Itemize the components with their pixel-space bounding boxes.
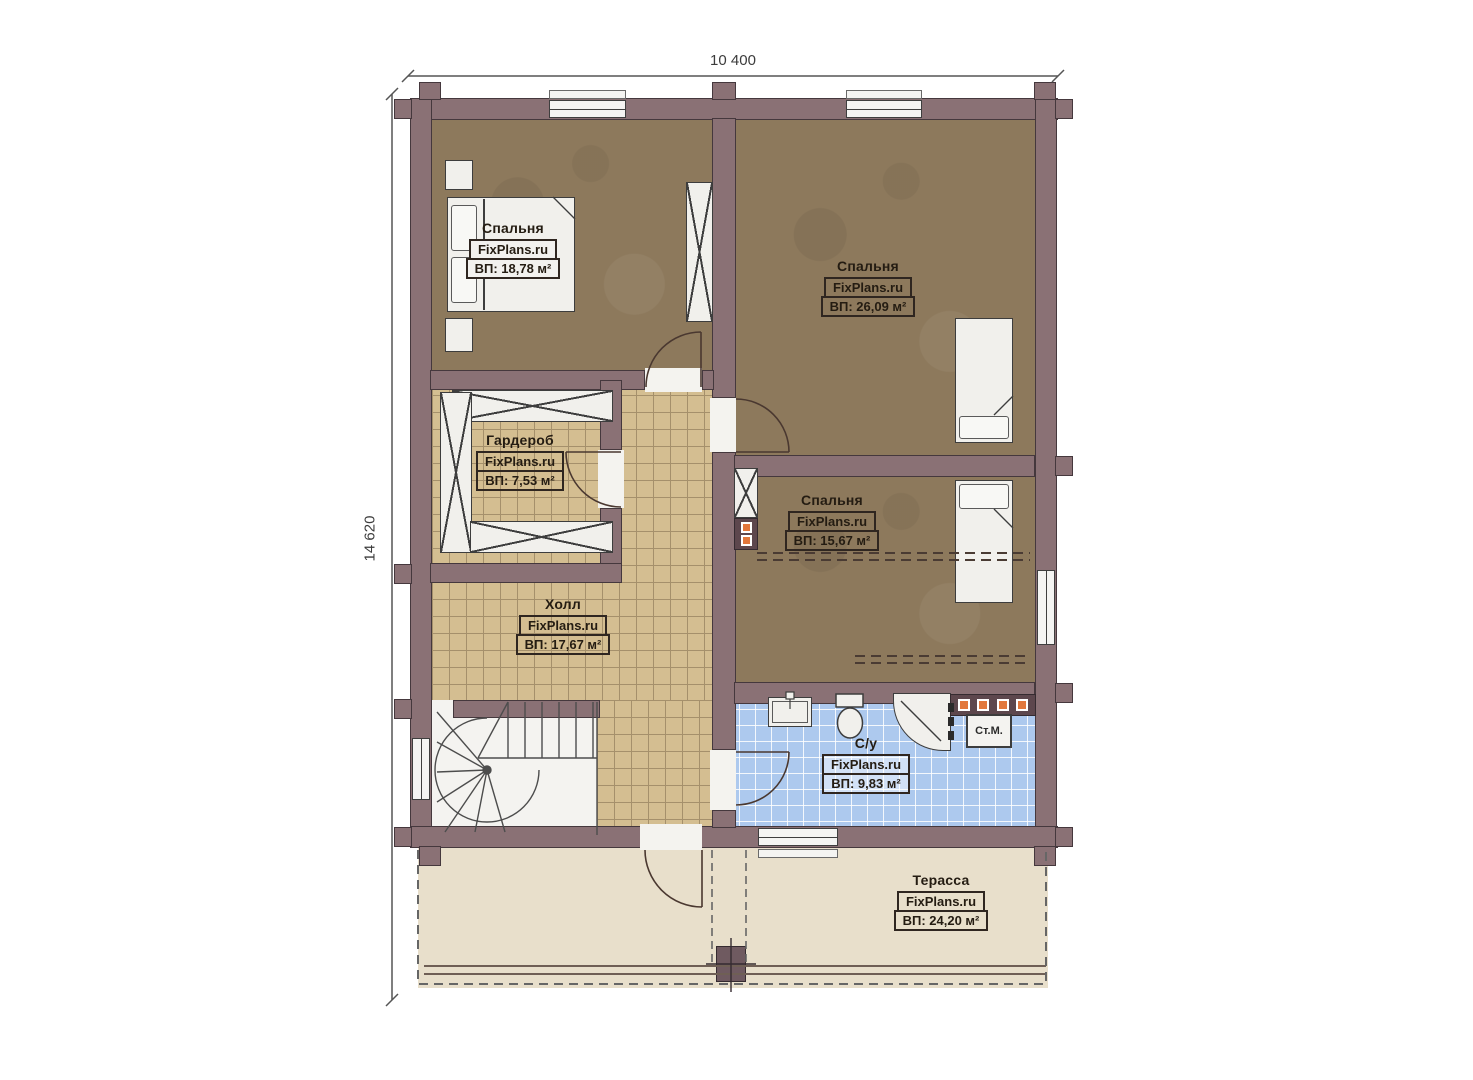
room-name: С/у (855, 735, 877, 751)
room-label-bedroom-3: Спальня FixPlans.ru ВП: 15,67 м² (772, 492, 892, 551)
room-name: Спальня (837, 258, 899, 274)
ceiling-height-dashed-line (757, 553, 1030, 663)
room-name: Гардероб (486, 432, 554, 448)
room-area: ВП: 9,83 м² (822, 773, 910, 794)
bed-folds (553, 197, 1013, 528)
plan-linework (0, 0, 1473, 1080)
room-label-wardrobe: Гардероб FixPlans.ru ВП: 7,53 м² (460, 432, 580, 491)
watermark: FixPlans.ru (897, 891, 985, 912)
floor-plan: Ст.М. (0, 0, 1473, 1080)
room-name: Терасса (913, 872, 970, 888)
room-label-terrace: Терасса FixPlans.ru ВП: 24,20 м² (881, 872, 1001, 931)
door-arc-bathroom (736, 752, 789, 805)
watermark: FixPlans.ru (469, 239, 557, 260)
room-name: Спальня (482, 220, 544, 236)
room-area: ВП: 24,20 м² (894, 910, 989, 931)
dimension-lines (386, 70, 1064, 1006)
room-area: ВП: 17,67 м² (516, 634, 611, 655)
room-area: ВП: 7,53 м² (476, 470, 564, 491)
room-name: Спальня (801, 492, 863, 508)
room-label-bathroom: С/у FixPlans.ru ВП: 9,83 м² (806, 735, 926, 794)
room-label-bedroom-2: Спальня FixPlans.ru ВП: 26,09 м² (808, 258, 928, 317)
dimension-height-label: 14 620 (362, 499, 379, 579)
room-area: ВП: 26,09 м² (821, 296, 916, 317)
dimension-width-label: 10 400 (693, 52, 773, 69)
sink-tap (786, 692, 794, 709)
room-label-hall: Холл FixPlans.ru ВП: 17,67 м² (503, 596, 623, 655)
stairs (435, 702, 597, 835)
watermark: FixPlans.ru (824, 277, 912, 298)
room-name: Холл (545, 596, 581, 612)
door-arc-terrace (645, 850, 702, 907)
room-area: ВП: 18,78 м² (466, 258, 561, 279)
room-area: ВП: 15,67 м² (785, 530, 880, 551)
washing-machine: Ст.М. (966, 714, 1012, 748)
watermark: FixPlans.ru (788, 511, 876, 532)
toilet (836, 694, 863, 738)
room-label-bedroom-1: Спальня FixPlans.ru ВП: 18,78 м² (453, 220, 573, 279)
watermark: FixPlans.ru (476, 451, 564, 472)
watermark: FixPlans.ru (822, 754, 910, 775)
watermark: FixPlans.ru (519, 615, 607, 636)
door-arc-bedroom1 (646, 332, 701, 387)
door-arc-bedroom2 (736, 399, 789, 452)
